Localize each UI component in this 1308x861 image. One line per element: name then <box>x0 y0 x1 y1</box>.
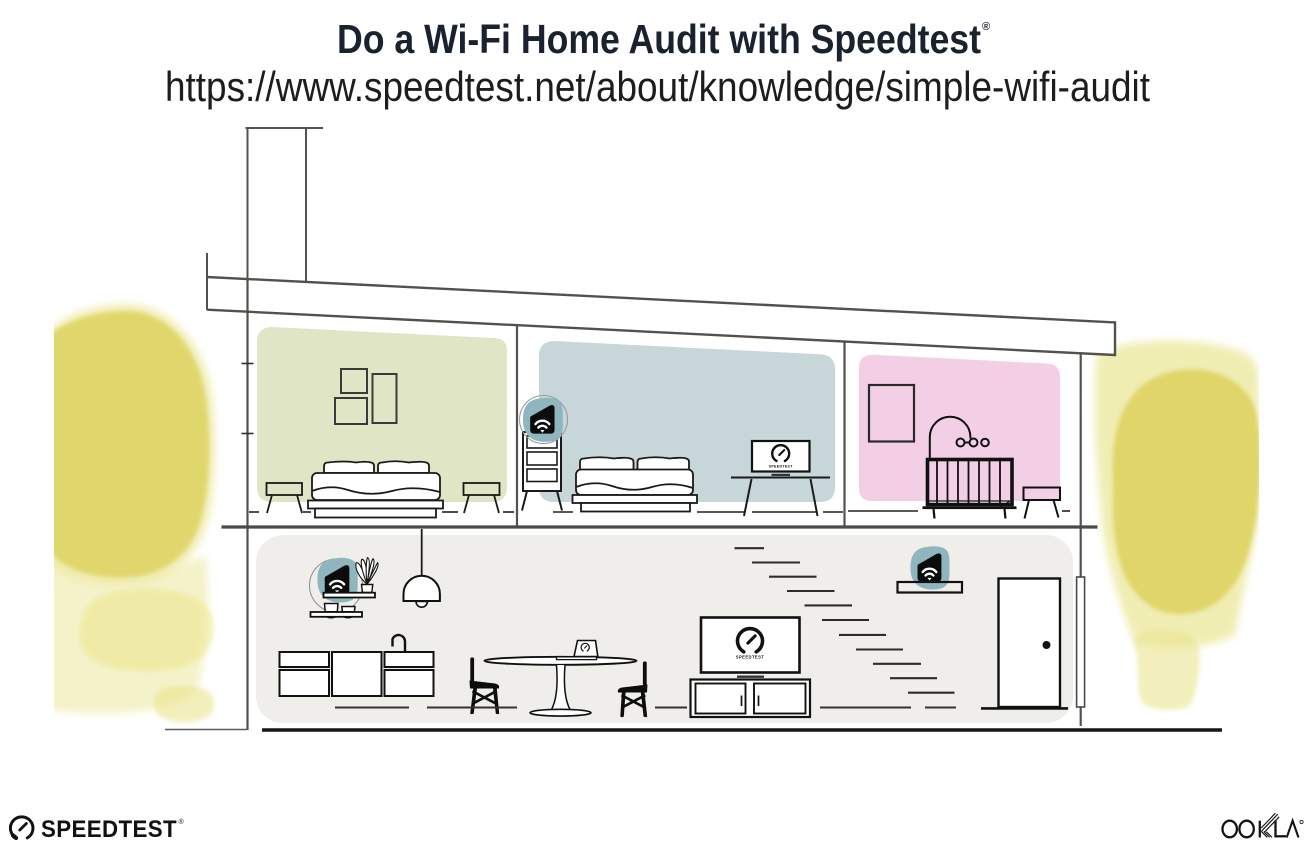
svg-text:®: ® <box>982 21 990 33</box>
svg-text:®: ® <box>179 818 185 826</box>
svg-text:SPEEDTEST: SPEEDTEST <box>736 655 765 660</box>
svg-text:SPEEDTEST: SPEEDTEST <box>769 465 794 469</box>
svg-text:Do a Wi-Fi Home Audit with Spe: Do a Wi-Fi Home Audit with Speedtest <box>337 16 981 62</box>
svg-text:https://www.speedtest.net/abou: https://www.speedtest.net/about/knowledg… <box>165 63 1150 110</box>
svg-text:SPEEDTEST: SPEEDTEST <box>41 816 177 843</box>
